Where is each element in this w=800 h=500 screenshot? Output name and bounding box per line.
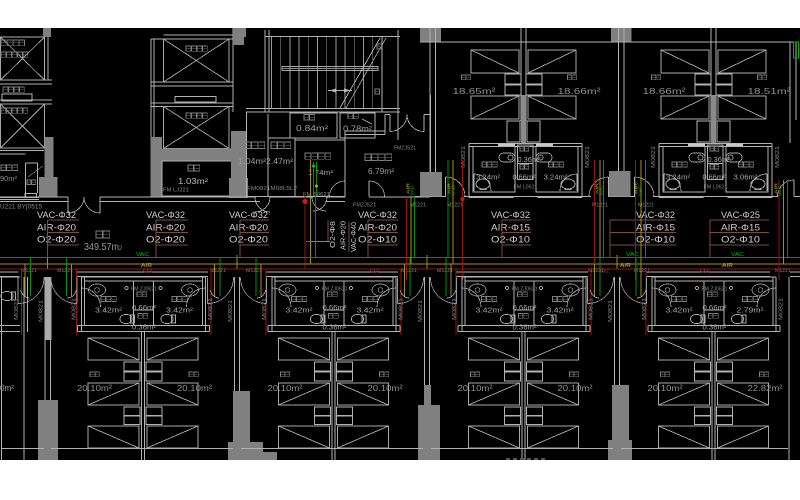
- svg-text:M0821: M0821: [608, 300, 614, 322]
- svg-text:22.82m²: 22.82m²: [748, 383, 783, 393]
- svg-text:0m²: 0m²: [0, 383, 14, 393]
- svg-text:20.10m²: 20.10m²: [458, 383, 493, 393]
- svg-text:3.42m²: 3.42m²: [166, 306, 194, 315]
- svg-text:U221 BY[0515: U221 BY[0515: [0, 204, 42, 211]
- svg-text:M0821: M0821: [452, 298, 458, 320]
- svg-text:M0821: M0821: [585, 146, 591, 168]
- svg-text:M0821: M0821: [399, 298, 405, 320]
- svg-text:2.79m²: 2.79m²: [737, 306, 765, 315]
- svg-text:18.65m²: 18.65m²: [453, 86, 496, 96]
- svg-text:18.66m²: 18.66m²: [558, 86, 601, 96]
- svg-text:M0821: M0821: [779, 298, 785, 320]
- svg-text:M0821: M0821: [418, 300, 424, 322]
- svg-text:M0821: M0821: [228, 300, 234, 322]
- svg-text:M0821: M0821: [208, 298, 214, 320]
- svg-text:VAC: VAC: [638, 184, 644, 196]
- svg-text:349.57m2: 349.57m2: [84, 242, 123, 253]
- svg-text:20.10m²: 20.10m²: [368, 383, 403, 393]
- svg-text:O2-Φ10: O2-Φ10: [491, 235, 530, 246]
- svg-text:1.74m²: 1.74m²: [308, 168, 334, 177]
- svg-text:O2-Φ10: O2-Φ10: [636, 235, 675, 246]
- svg-text:O2-Φ10: O2-Φ10: [721, 235, 760, 246]
- svg-text:FM L0621: FM L0621: [704, 184, 728, 190]
- svg-text:FM ZJ0621: FM ZJ0621: [512, 287, 538, 293]
- svg-text:0.78m²: 0.78m²: [343, 125, 372, 134]
- svg-text:M0821: M0821: [642, 298, 648, 320]
- svg-text:20.10m²: 20.10m²: [648, 383, 683, 393]
- svg-text:M1221: M1221: [447, 202, 463, 208]
- svg-text:3.42m²: 3.42m²: [666, 306, 694, 315]
- svg-text:0.36m²: 0.36m²: [703, 323, 728, 332]
- svg-text:FM L0621: FM L0621: [514, 184, 538, 190]
- svg-text:O2: O2: [370, 269, 379, 275]
- svg-text:VAC: VAC: [778, 184, 784, 196]
- svg-text:FM ZJ0621: FM ZJ0621: [322, 287, 348, 293]
- svg-text:20.10m²: 20.10m²: [558, 383, 593, 393]
- svg-text:O2: O2: [143, 269, 152, 275]
- svg-text:FM LJ221: FM LJ221: [163, 188, 189, 194]
- svg-text:0.36m²: 0.36m²: [513, 323, 538, 332]
- svg-text:0.36m²: 0.36m²: [323, 323, 348, 332]
- svg-text:AIR-Φ20: AIR-Φ20: [341, 221, 348, 250]
- svg-text:O2-Φ10: O2-Φ10: [358, 235, 397, 246]
- svg-text:0.66m²: 0.66m²: [703, 174, 727, 181]
- svg-text:VAC: VAC: [451, 184, 457, 196]
- svg-text:20.10m²: 20.10m²: [77, 383, 112, 393]
- svg-text:O2-Φ20: O2-Φ20: [37, 235, 76, 246]
- svg-text:VAC-Φ40: VAC-Φ40: [351, 222, 358, 252]
- svg-text:18.51m²: 18.51m²: [748, 86, 791, 96]
- svg-text:M0821: M0821: [14, 298, 20, 320]
- svg-text:3.42m²: 3.42m²: [476, 306, 504, 315]
- svg-text:M0821: M0821: [651, 146, 657, 168]
- svg-text:FM0821M08L5L2: FM0821M08L5L2: [247, 186, 297, 192]
- svg-text:0.36m²: 0.36m²: [132, 323, 157, 332]
- svg-text:3.42m²: 3.42m²: [286, 306, 314, 315]
- svg-text:18.66m²: 18.66m²: [643, 86, 686, 96]
- svg-text:0.66m²: 0.66m²: [513, 303, 538, 312]
- svg-text:1.04m²: 1.04m²: [238, 157, 266, 166]
- svg-text:O2-Φ20: O2-Φ20: [229, 235, 268, 246]
- svg-text:90m²: 90m²: [0, 174, 17, 183]
- svg-text:0.66m²: 0.66m²: [703, 303, 728, 312]
- svg-text:M1221: M1221: [638, 202, 654, 208]
- svg-text:0.66m²: 0.66m²: [513, 174, 537, 181]
- svg-text:VAC: VAC: [626, 252, 639, 258]
- svg-text:O2: O2: [700, 269, 709, 275]
- svg-text:3.42m²: 3.42m²: [95, 306, 123, 315]
- svg-text:0.66m²: 0.66m²: [323, 303, 348, 312]
- svg-text:O2: O2: [600, 269, 609, 275]
- svg-text:FMZJ521: FMZJ521: [394, 146, 416, 152]
- svg-text:0.66m²: 0.66m²: [132, 303, 157, 312]
- svg-text:M0821: M0821: [262, 298, 268, 320]
- svg-text:0.84m²: 0.84m²: [296, 124, 328, 133]
- svg-text:FM ZJ0621: FM ZJ0621: [702, 287, 728, 293]
- svg-text:VAC: VAC: [410, 184, 416, 196]
- svg-text:VAC: VAC: [136, 252, 149, 258]
- svg-text:AIR: AIR: [722, 263, 733, 269]
- svg-text:FMZJ521: FMZJ521: [353, 203, 376, 209]
- svg-text:AIR: AIR: [620, 263, 631, 269]
- svg-text:VAC: VAC: [731, 252, 744, 258]
- svg-text:20.10m²: 20.10m²: [268, 383, 303, 393]
- svg-text:O2-Φ20: O2-Φ20: [146, 235, 185, 246]
- svg-text:M1221: M1221: [410, 202, 426, 208]
- svg-text:2.47m²: 2.47m²: [266, 157, 293, 166]
- svg-text:M0821: M0821: [39, 300, 45, 322]
- svg-text:VAC: VAC: [599, 184, 605, 196]
- svg-text:O2-Φ8: O2-Φ8: [330, 221, 337, 248]
- svg-text:M0821: M0821: [775, 146, 781, 168]
- svg-text:M0821: M0821: [589, 298, 595, 320]
- svg-text:3.42m²: 3.42m²: [357, 306, 385, 315]
- svg-text:6.79m²: 6.79m²: [368, 167, 394, 176]
- svg-text:1.03m²: 1.03m²: [178, 177, 208, 186]
- svg-text:FM ZJ0621: FM ZJ0621: [131, 287, 157, 293]
- svg-text:3.42m²: 3.42m²: [547, 306, 575, 315]
- svg-text:20.10m²: 20.10m²: [177, 383, 212, 393]
